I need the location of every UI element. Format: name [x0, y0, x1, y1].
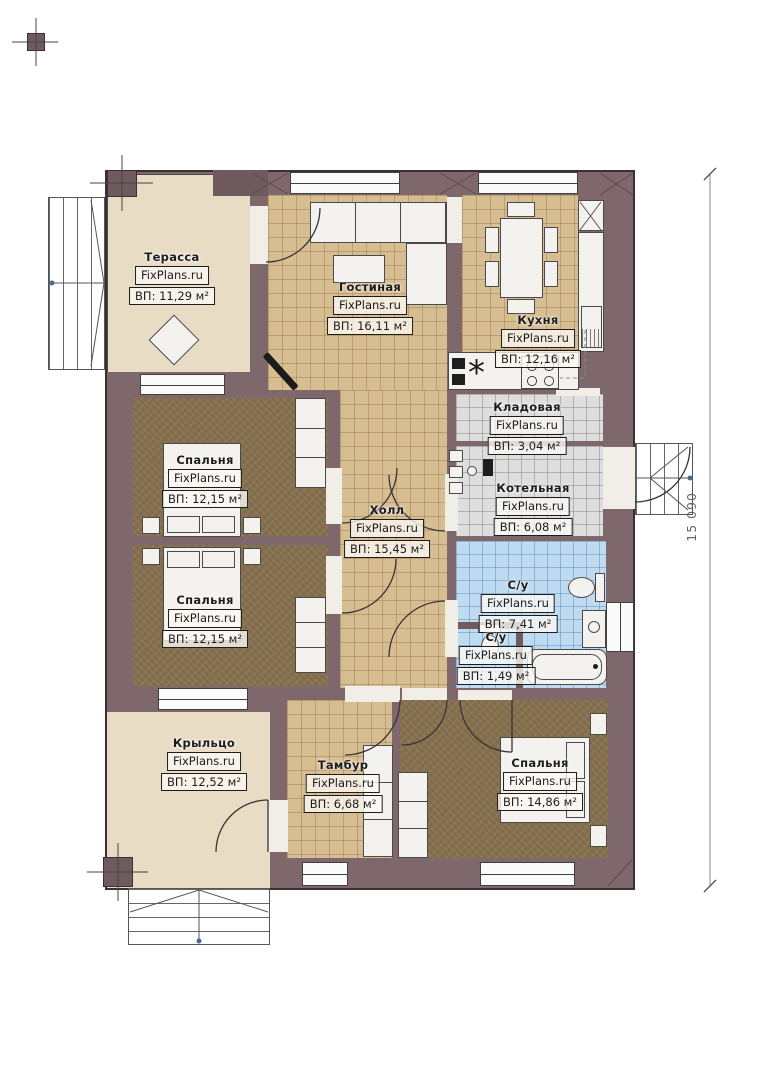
watermark: FixPlans.ru: [350, 519, 424, 538]
room-area: ВП: 1,49 м²: [457, 667, 536, 686]
column-marker-bottom-left: [103, 857, 133, 887]
chair: [485, 227, 499, 253]
room-label-pantry: Кладовая FixPlans.ru ВП: 3,04 м²: [488, 400, 567, 455]
sink-icon: *: [468, 356, 485, 390]
dimension-value: 15 090: [684, 492, 699, 542]
window-vestibule: [302, 862, 348, 886]
watermark: FixPlans.ru: [333, 296, 407, 315]
door-opening-bedroom-1: [326, 468, 342, 524]
room-label-wc-small: С/у FixPlans.ru ВП: 1,49 м²: [457, 630, 536, 685]
wardrobe-bedroom-1: [295, 398, 326, 488]
watermark: FixPlans.ru: [168, 609, 242, 628]
chair: [507, 202, 535, 217]
room-name: Котельная: [496, 481, 569, 495]
room-name: Крыльцо: [173, 736, 235, 750]
window-kitchen: [478, 172, 578, 194]
nightstand: [142, 548, 160, 565]
room-name: Спальня: [176, 453, 233, 467]
room-label-bathroom: С/у FixPlans.ru ВП: 7,41 м²: [479, 578, 558, 633]
door-opening-bedroom-3: [402, 688, 447, 700]
room-name: Гостиная: [339, 280, 401, 294]
door-opening-terrace-living: [250, 206, 268, 264]
room-label-bedroom-3: Спальня FixPlans.ru ВП: 14,86 м²: [497, 756, 583, 811]
room-name: С/у: [507, 578, 528, 592]
room-name: Спальня: [511, 756, 568, 770]
room-label-bedroom-1: Спальня FixPlans.ru ВП: 12,15 м²: [162, 453, 248, 508]
door-opening-boiler-exterior: [603, 447, 635, 509]
chair: [544, 227, 558, 253]
dimension-line: [704, 168, 716, 892]
window-bedroom-2: [158, 688, 248, 710]
room-area: ВП: 6,08 м²: [494, 518, 573, 537]
door-opening-bedroom-2: [326, 556, 342, 614]
boiler-equipment: [483, 459, 493, 476]
boiler-unit: [449, 482, 463, 494]
chair: [544, 261, 558, 287]
nightstand: [243, 548, 261, 565]
axis-marker-corner: [27, 33, 45, 51]
boiler-gauge: [467, 466, 477, 476]
watermark: FixPlans.ru: [135, 266, 209, 285]
room-area: ВП: 6,68 м²: [304, 795, 383, 814]
wall-pier-terrace: [213, 170, 268, 196]
room-name: Терасса: [144, 250, 199, 264]
nightstand: [590, 825, 607, 847]
room-label-kitchen: Кухня FixPlans.ru ВП: 12,16 м²: [495, 313, 581, 368]
dimension-tick: [704, 880, 716, 892]
kitchen-appliance: [581, 306, 602, 348]
window-bathroom: [606, 602, 634, 652]
boiler-unit: [449, 466, 463, 478]
watermark: FixPlans.ru: [503, 772, 577, 791]
bathtub-drain: [593, 664, 598, 669]
room-area: ВП: 12,16 м²: [495, 350, 581, 369]
pillow: [202, 551, 235, 568]
dimension-tick: [704, 168, 716, 180]
watermark: FixPlans.ru: [459, 646, 533, 665]
room-name: Спальня: [176, 593, 233, 607]
chair: [485, 261, 499, 287]
room-name: Холл: [370, 503, 405, 517]
room-name: Тамбур: [318, 758, 369, 772]
nightstand: [142, 517, 160, 534]
toilet-tank: [595, 573, 605, 602]
room-label-hall: Холл FixPlans.ru ВП: 15,45 м²: [344, 503, 430, 558]
column-marker-top-left: [107, 170, 137, 197]
room-label-vestibule: Тамбур FixPlans.ru ВП: 6,68 м²: [304, 758, 383, 813]
room-name: Кухня: [517, 313, 558, 327]
pillow: [167, 516, 200, 533]
fridge: [578, 200, 604, 231]
window-bedroom-1: [140, 374, 225, 395]
watermark: FixPlans.ru: [306, 774, 380, 793]
room-area: ВП: 12,15 м²: [162, 630, 248, 649]
room-label-bedroom-2: Спальня FixPlans.ru ВП: 12,15 м²: [162, 593, 248, 648]
pillow: [167, 551, 200, 568]
room-area: ВП: 14,86 м²: [497, 793, 583, 812]
watermark: FixPlans.ru: [481, 594, 555, 613]
watermark: FixPlans.ru: [490, 416, 564, 435]
room-label-boiler-room: Котельная FixPlans.ru ВП: 6,08 м²: [494, 481, 573, 536]
cabinet-box: [452, 358, 465, 369]
room-name: С/у: [485, 630, 506, 644]
door-opening-wc-small: [458, 690, 512, 700]
room-area: ВП: 11,29 м²: [129, 287, 215, 306]
coffee-table: [333, 255, 385, 283]
room-area: ВП: 16,11 м²: [327, 317, 413, 336]
room-area: ВП: 12,52 м²: [161, 773, 247, 792]
room-area: ВП: 3,04 м²: [488, 437, 567, 456]
nightstand: [243, 517, 261, 534]
bathtub-inner: [532, 654, 602, 680]
chair: [507, 299, 535, 314]
steps-porch: [128, 888, 270, 945]
wardrobe-bedroom-2: [295, 597, 326, 673]
watermark: FixPlans.ru: [496, 497, 570, 516]
sofa-horizontal: [310, 202, 447, 243]
wardrobe-bedroom-3: [398, 772, 428, 858]
pillow: [202, 516, 235, 533]
steps-terrace: [48, 197, 105, 370]
window-living-room: [290, 172, 400, 194]
watermark: FixPlans.ru: [168, 469, 242, 488]
room-area: ВП: 12,15 м²: [162, 490, 248, 509]
room-area: ВП: 15,45 м²: [344, 540, 430, 559]
watermark: FixPlans.ru: [501, 329, 575, 348]
nightstand: [590, 713, 607, 735]
toilet-bowl: [568, 577, 595, 598]
room-label-terrace: Терасса FixPlans.ru ВП: 11,29 м²: [129, 250, 215, 305]
passage-living-kitchen: [447, 197, 462, 243]
door-opening-porch: [268, 800, 288, 852]
dining-table: [500, 218, 543, 298]
door-opening-vestibule: [345, 686, 400, 702]
floor-plan: *: [0, 0, 763, 1080]
room-label-porch: Крыльцо FixPlans.ru ВП: 12,52 м²: [161, 736, 247, 791]
cabinet-box: [452, 374, 465, 385]
watermark: FixPlans.ru: [167, 752, 241, 771]
window-bedroom-3: [480, 862, 575, 886]
room-label-living-room: Гостиная FixPlans.ru ВП: 16,11 м²: [327, 280, 413, 335]
boiler-unit: [449, 450, 463, 462]
room-name: Кладовая: [493, 400, 561, 414]
washing-machine-door: [588, 621, 600, 633]
